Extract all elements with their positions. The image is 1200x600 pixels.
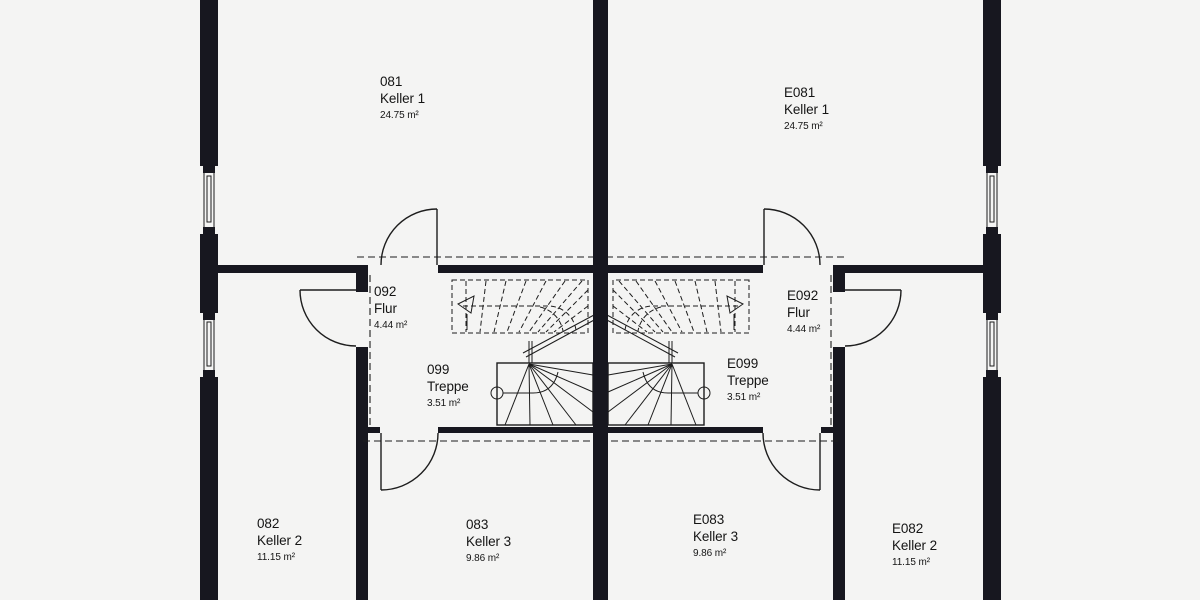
room-area: 11.15 m²: [257, 552, 302, 565]
room-name: Keller 1: [784, 102, 829, 119]
room-label-E081: E081 Keller 1 24.75 m²: [784, 85, 829, 133]
door-keller2: [300, 290, 356, 346]
basement-floorplan: 081 Keller 1 24.75 m² E081 Keller 1 24.7…: [0, 0, 1200, 600]
room-name: Flur: [787, 305, 820, 322]
exterior-wall-left: [200, 0, 218, 600]
room-number: 081: [380, 74, 425, 91]
room-area: 3.51 m²: [427, 398, 469, 411]
room-label-E083: E083 Keller 3 9.86 m²: [693, 512, 738, 560]
room-name: Flur: [374, 301, 407, 318]
room-name: Keller 3: [693, 529, 738, 546]
room-number: 092: [374, 284, 407, 301]
room-number: 082: [257, 516, 302, 533]
room-area: 4.44 m²: [374, 320, 407, 333]
window-symbol: [199, 166, 219, 234]
room-name: Treppe: [727, 373, 769, 390]
room-area: 11.15 m²: [892, 557, 937, 570]
room-number: E082: [892, 521, 937, 538]
stair-lower-flight: [491, 315, 596, 425]
room-area: 24.75 m²: [784, 121, 829, 134]
room-label-E092: E092 Flur 4.44 m²: [787, 288, 820, 336]
room-area: 24.75 m²: [380, 110, 425, 123]
room-area: 9.86 m²: [693, 548, 738, 561]
room-number: E083: [693, 512, 738, 529]
room-number: 083: [466, 517, 511, 534]
room-label-083: 083 Keller 3 9.86 m²: [466, 517, 511, 565]
room-label-081: 081 Keller 1 24.75 m²: [380, 74, 425, 122]
room-label-082: 082 Keller 2 11.15 m²: [257, 516, 302, 564]
room-name: Keller 2: [257, 533, 302, 550]
room-area: 9.86 m²: [466, 553, 511, 566]
room-label-099: 099 Treppe 3.51 m²: [427, 362, 469, 410]
room-name: Keller 2: [892, 538, 937, 555]
room-number: E099: [727, 356, 769, 373]
room-number: E092: [787, 288, 820, 305]
floorplan-svg: [0, 0, 1200, 600]
room-label-092: 092 Flur 4.44 m²: [374, 284, 407, 332]
room-number: E081: [784, 85, 829, 102]
party-wall: [593, 0, 608, 600]
room-area: 3.51 m²: [727, 392, 769, 405]
window-symbol: [199, 313, 219, 377]
room-label-E082: E082 Keller 2 11.15 m²: [892, 521, 937, 569]
room-label-E099: E099 Treppe 3.51 m²: [727, 356, 769, 404]
room-area: 4.44 m²: [787, 324, 820, 337]
room-name: Keller 3: [466, 534, 511, 551]
room-name: Treppe: [427, 379, 469, 396]
room-number: 099: [427, 362, 469, 379]
room-name: Keller 1: [380, 91, 425, 108]
